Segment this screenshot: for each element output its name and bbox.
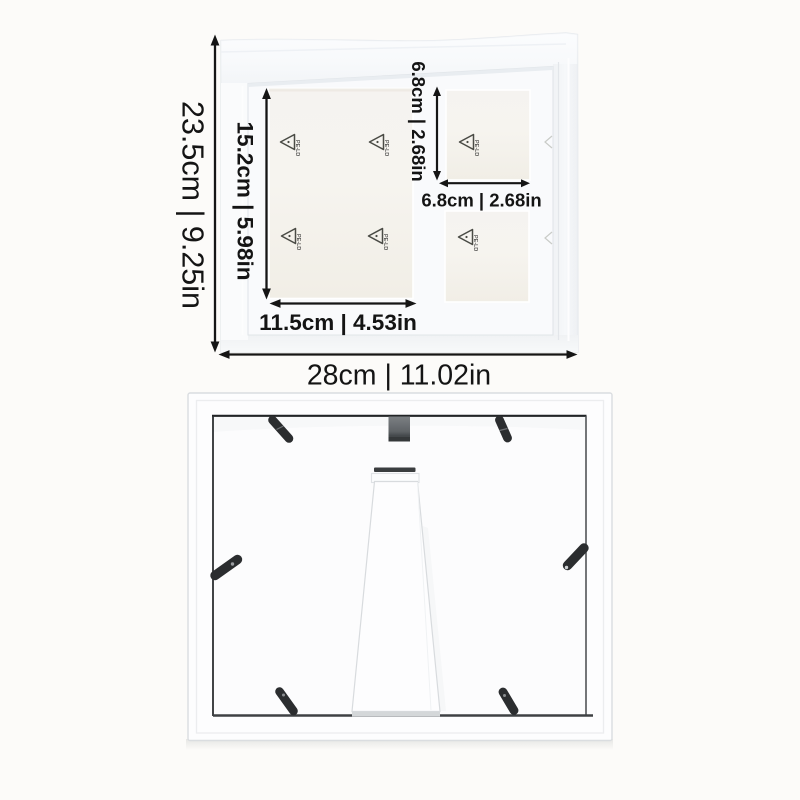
svg-text:PE-LD: PE-LD bbox=[472, 235, 478, 251]
svg-text:11.5cm | 4.53in: 11.5cm | 4.53in bbox=[259, 310, 417, 335]
svg-text:PE-LD: PE-LD bbox=[383, 140, 389, 156]
svg-text:PE-LD: PE-LD bbox=[473, 140, 479, 156]
svg-text:PE-LD: PE-LD bbox=[295, 234, 301, 250]
svg-text:15.2cm | 5.98in: 15.2cm | 5.98in bbox=[233, 122, 258, 281]
svg-text:PE-LD: PE-LD bbox=[294, 140, 300, 156]
svg-text:6.8cm | 2.68in: 6.8cm | 2.68in bbox=[421, 190, 541, 211]
svg-text:PE-LD: PE-LD bbox=[382, 234, 388, 250]
svg-text:6.8cm | 2.68in: 6.8cm | 2.68in bbox=[408, 61, 429, 181]
svg-text:23.5cm | 9.25in: 23.5cm | 9.25in bbox=[175, 101, 209, 309]
svg-text:28cm | 11.02in: 28cm | 11.02in bbox=[307, 360, 491, 392]
